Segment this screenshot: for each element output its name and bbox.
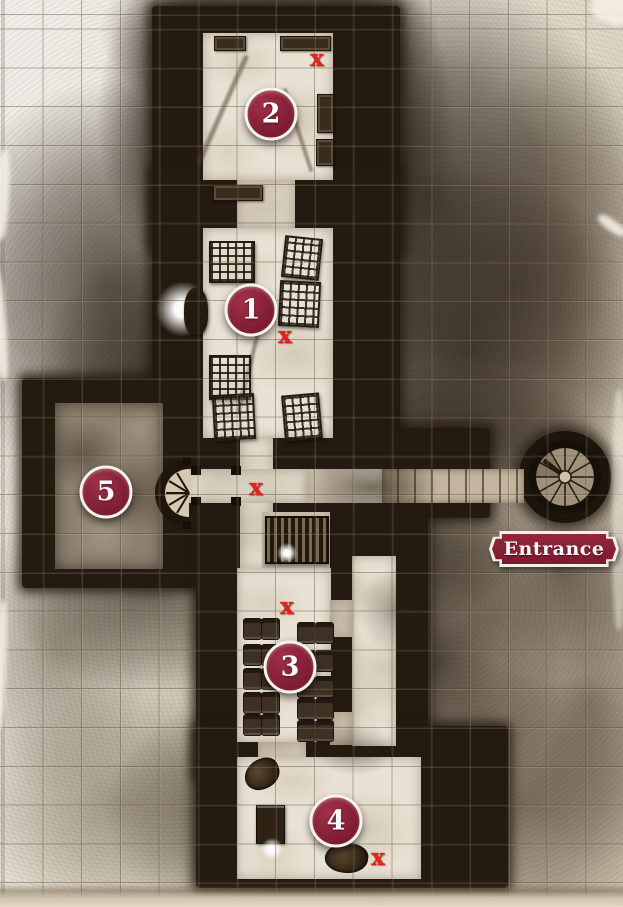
room-marker-1: 1 [225,284,278,337]
x-mark-room-4: x [371,844,385,871]
entrance-label: Entrance [504,538,605,560]
x-mark-junction: x [249,474,263,501]
dungeon-map: 2 1 5 3 4 x x x x x Entrance [0,0,623,907]
room-marker-3: 3 [264,641,317,694]
map-grid-highlight [0,0,623,907]
room-marker-2: 2 [245,88,298,141]
x-mark-room-1: x [278,322,292,349]
entrance-banner: Entrance [489,531,619,567]
x-mark-room-2: x [310,45,324,72]
entrance-banner-plaque: Entrance [492,534,616,564]
room-marker-5: 5 [80,466,133,519]
room-marker-4: 4 [310,795,363,848]
paper-tear [612,390,623,630]
page-bottom-edge [0,884,623,907]
x-mark-room-3: x [280,593,294,620]
